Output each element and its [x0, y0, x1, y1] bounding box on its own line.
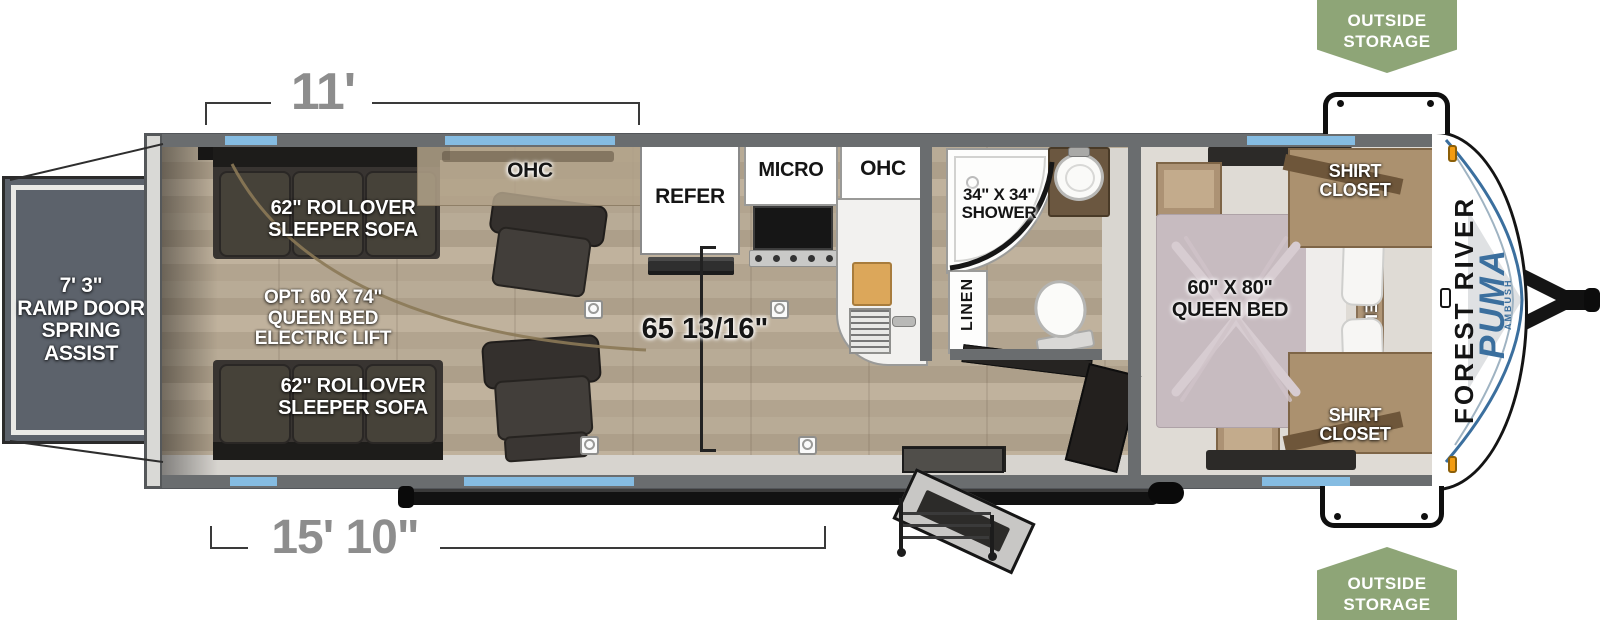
- dim-top-tick-left: [205, 102, 207, 125]
- ramp-label-line2: RAMP DOOR: [17, 297, 145, 320]
- sofa-top-label-line2: SLEEPER SOFA: [268, 219, 418, 241]
- tie-down-ring: [798, 436, 817, 455]
- window: [1262, 477, 1350, 486]
- dim-width-vline: [700, 246, 703, 452]
- opt-queen-bed-label: OPT. 60 X 74" QUEEN BED ELECTRIC LIFT: [248, 288, 398, 350]
- sofa-bottom-label-line1: 62" ROLLOVER: [281, 375, 426, 397]
- step-wheel: [897, 548, 906, 557]
- ramp-door-label: 7' 3" RAMP DOOR SPRING ASSIST: [12, 275, 150, 366]
- step-wheel: [988, 552, 997, 561]
- dim-interior-width: 65 13/16": [612, 314, 798, 345]
- compartment-latch: [1421, 513, 1428, 520]
- shirt-closet-top-line2: CLOSET: [1319, 180, 1390, 200]
- dim-bottom-tick-left: [210, 526, 212, 549]
- opt-bed-line1: OPT. 60 X 74": [264, 287, 382, 308]
- badge-bottom-line1: OUTSIDE: [1347, 574, 1426, 593]
- sofa-top-label-line1: 62" ROLLOVER: [271, 197, 416, 219]
- compartment-latch: [1427, 100, 1434, 107]
- step-crossbar: [903, 512, 991, 515]
- dim-top-line-right: [372, 102, 640, 104]
- opt-bed-line3: ELECTRIC LIFT: [255, 328, 391, 349]
- window: [230, 477, 277, 486]
- shirt-closet-bottom-line1: SHIRT: [1329, 405, 1382, 425]
- dim-bottom-tick-right: [824, 526, 826, 549]
- badge-bottom-line2: STORAGE: [1343, 595, 1430, 614]
- window: [225, 136, 277, 145]
- storage-compartment-bottom: [1320, 486, 1444, 528]
- sofa-top-label: 62" ROLLOVER SLEEPER SOFA: [258, 198, 428, 241]
- ramp-label-line3: SPRING: [42, 319, 121, 342]
- dim-garage-length: 11': [276, 64, 370, 120]
- dim-top-line-left: [205, 102, 271, 104]
- ramp-opening-frame: [145, 134, 162, 488]
- outside-storage-badge-top: OUTSIDE STORAGE: [1317, 0, 1457, 73]
- dim-main-length: 15' 10": [245, 512, 445, 564]
- tie-down-ring: [584, 300, 603, 319]
- sofa-bottom-label-line2: SLEEPER SOFA: [278, 397, 428, 419]
- kitchen-ohc-label: OHC: [848, 158, 918, 181]
- micro-label: MICRO: [748, 160, 834, 182]
- step-crossbar: [903, 524, 991, 527]
- bed-label-line2: QUEEN BED: [1172, 299, 1288, 321]
- shirt-closet-top-line1: SHIRT: [1329, 161, 1382, 181]
- shower-label: 34" X 34" SHOWER: [944, 186, 1054, 223]
- awning-end-left: [398, 486, 414, 508]
- dim-bottom-line-right: [440, 547, 826, 549]
- refer-label: REFER: [648, 186, 732, 209]
- awning-rail: [404, 489, 1160, 505]
- outside-storage-badge-bottom: OUTSIDE STORAGE: [1317, 547, 1457, 620]
- tie-down-ring: [580, 436, 599, 455]
- bed-label-line1: 60" X 80": [1187, 277, 1272, 299]
- dim-width-tick-bottom: [700, 449, 716, 452]
- dim-top-tick-right: [638, 102, 640, 125]
- shirt-closet-bottom-label: SHIRT CLOSET: [1300, 406, 1410, 445]
- opt-bed-line2: QUEEN BED: [268, 308, 378, 329]
- garage-ohc-label: OHC: [495, 160, 565, 183]
- shower-label-line1: 34" X 34": [963, 185, 1035, 204]
- dim-bottom-line-left: [210, 547, 248, 549]
- step-rail-right: [990, 515, 994, 557]
- floorplan-canvas: 7' 3" RAMP DOOR SPRING ASSIST: [0, 0, 1600, 620]
- compartment-latch: [1337, 100, 1344, 107]
- dim-width-tick-top: [700, 246, 716, 249]
- hitch-coupler: [1584, 288, 1600, 312]
- shirt-closet-bottom-line2: CLOSET: [1319, 424, 1390, 444]
- ramp-label-line1: 7' 3": [60, 274, 103, 297]
- window: [445, 136, 615, 145]
- shower-label-line2: SHOWER: [962, 203, 1037, 222]
- window: [1247, 136, 1355, 145]
- brand-trim: AMBUSH: [1504, 258, 1514, 350]
- tie-down-ring: [770, 300, 789, 319]
- queen-bed-label: 60" X 80" QUEEN BED: [1150, 278, 1310, 321]
- storage-compartment-top: [1323, 92, 1450, 134]
- window: [464, 477, 634, 486]
- badge-top-line1: OUTSIDE: [1347, 11, 1426, 30]
- sofa-bottom-label: 62" ROLLOVER SLEEPER SOFA: [268, 376, 438, 419]
- ramp-label-line4: ASSIST: [44, 342, 118, 365]
- step-crossbar: [903, 536, 989, 539]
- compartment-latch: [1334, 513, 1341, 520]
- awning-end-right: [1148, 482, 1184, 504]
- shirt-closet-top-label: SHIRT CLOSET: [1300, 162, 1410, 201]
- badge-top-line2: STORAGE: [1343, 32, 1430, 51]
